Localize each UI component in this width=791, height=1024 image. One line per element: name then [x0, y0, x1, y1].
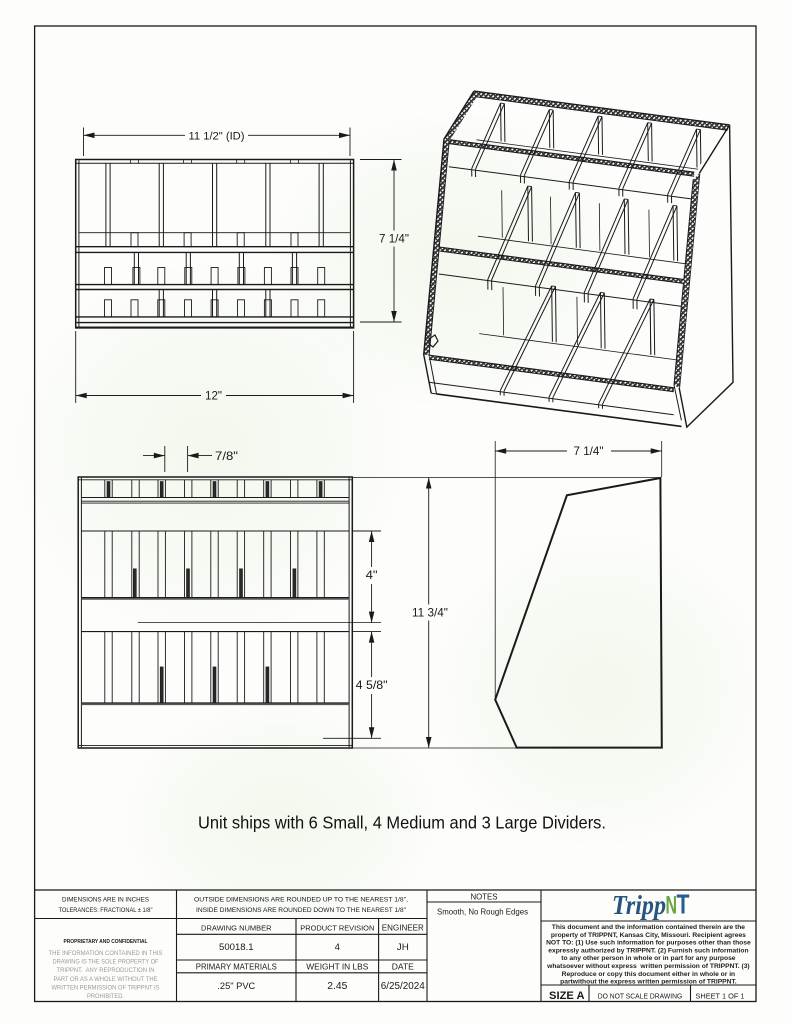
svg-text:6/25/2024: 6/25/2024 [381, 981, 426, 992]
svg-text:NOTES: NOTES [471, 893, 498, 902]
svg-text:NOT TO: (1) Use such informati: NOT TO: (1) Use such information for pur… [546, 940, 751, 947]
svg-text:12": 12" [205, 390, 222, 403]
svg-text:DATE: DATE [392, 962, 414, 972]
svg-text:PRODUCT REVISION: PRODUCT REVISION [300, 924, 374, 933]
svg-text:Tripp: Tripp [612, 890, 666, 920]
svg-text:4: 4 [335, 942, 340, 953]
svg-text:N: N [666, 892, 678, 920]
svg-text:WRITTEN PERMISSION OF TRIPPNT: WRITTEN PERMISSION OF TRIPPNT IS [52, 985, 160, 991]
svg-text:7/8": 7/8" [215, 449, 238, 463]
svg-text:T: T [677, 889, 690, 920]
svg-text:expressly authorized by TRIPPN: expressly authorized by TRIPPNT. (2) Fur… [548, 947, 748, 954]
svg-text:PRIMARY MATERIALS: PRIMARY MATERIALS [196, 963, 277, 972]
svg-text:11 1/2" (ID): 11 1/2" (ID) [189, 131, 245, 143]
svg-text:DRAWING NUMBER: DRAWING NUMBER [201, 924, 272, 933]
svg-text:Reproduce or copy this documen: Reproduce or copy this document either i… [562, 971, 736, 978]
svg-text:ENGINEER: ENGINEER [382, 924, 424, 933]
svg-text:7 1/4": 7 1/4" [379, 233, 409, 246]
svg-text:to any other person in whole o: to any other person in whole or in part … [561, 955, 736, 962]
svg-text:PROPRIETARY AND CONFIDENTIAL: PROPRIETARY AND CONFIDENTIAL [64, 939, 148, 945]
svg-text:2.45: 2.45 [327, 981, 348, 992]
svg-text:This document and the informat: This document and the information contai… [552, 924, 745, 931]
svg-text:partwithout the express writte: partwithout the express written permissi… [560, 979, 737, 986]
svg-text:THE INFORMATION CONTAINED IN T: THE INFORMATION CONTAINED IN THIS [49, 951, 163, 957]
svg-text:TRIPPNT. ANY REPRODUCTION IN: TRIPPNT. ANY REPRODUCTION IN [57, 968, 155, 974]
svg-text:4 5/8": 4 5/8" [356, 678, 388, 692]
svg-text:JH: JH [397, 942, 409, 953]
svg-text:whatsoever without express wr: whatsoever without express written permi… [546, 963, 750, 970]
svg-text:PART OR AS A WHOLE WITHOUT THE: PART OR AS A WHOLE WITHOUT THE [54, 977, 158, 983]
svg-text:OUTSIDE DIMENSIONS ARE ROUNDED: OUTSIDE DIMENSIONS ARE ROUNDED UP TO THE… [194, 897, 408, 904]
svg-text:50018.1: 50018.1 [219, 942, 254, 953]
svg-text:SIZE A: SIZE A [549, 990, 585, 1002]
svg-text:TOLERANCES: FRACTIONAL ± 1/8": TOLERANCES: FRACTIONAL ± 1/8" [59, 907, 153, 914]
svg-text:11 3/4": 11 3/4" [412, 606, 448, 620]
svg-text:SHEET 1 OF 1: SHEET 1 OF 1 [696, 992, 745, 1001]
svg-text:Smooth, No Rough Edges: Smooth, No Rough Edges [437, 908, 528, 917]
svg-text:4": 4" [366, 568, 378, 582]
svg-text:.25" PVC: .25" PVC [217, 981, 255, 991]
svg-text:DRAWING IS THE SOLE PROPERTY O: DRAWING IS THE SOLE PROPERTY OF [53, 960, 159, 966]
svg-text:INSIDE DIMENSIONS ARE ROUNDED: INSIDE DIMENSIONS ARE ROUNDED DOWN TO TH… [196, 907, 407, 914]
svg-text:Unit ships with 6 Small, 4 Med: Unit ships with 6 Small, 4 Medium and 3 … [198, 813, 606, 833]
svg-text:PROHIBITED.: PROHIBITED. [87, 994, 124, 1000]
svg-text:WEIGHT IN LBS: WEIGHT IN LBS [306, 962, 368, 972]
svg-text:DO NOT SCALE DRAWING: DO NOT SCALE DRAWING [598, 992, 683, 1001]
svg-text:property of TRIPPNT, Kansas Ci: property of TRIPPNT, Kansas City, Missou… [551, 932, 746, 939]
svg-text:7 1/4": 7 1/4" [574, 445, 604, 458]
svg-text:DIMENSIONS ARE IN INCHES: DIMENSIONS ARE IN INCHES [62, 897, 149, 904]
